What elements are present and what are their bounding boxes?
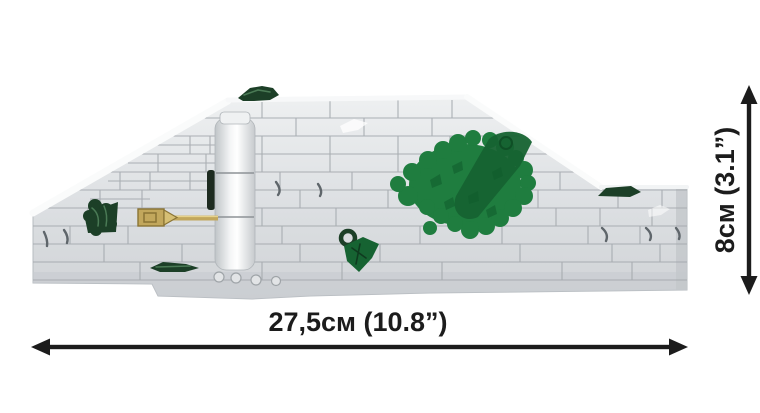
height-dimension: 8см (3.1”)	[710, 85, 758, 295]
brick-wall	[30, 97, 690, 302]
width-dimension: 27,5см (10.8”)	[31, 307, 688, 356]
product-dimension-figure: 27,5см (10.8”) 8см (3.1”)	[0, 0, 760, 413]
left-ivy-foliage	[83, 199, 118, 236]
width-label: 27,5см (10.8”)	[268, 307, 447, 337]
height-arrow	[741, 85, 758, 295]
height-label: 8см (3.1”)	[710, 127, 740, 254]
column-slot	[207, 170, 215, 210]
width-arrow	[31, 339, 688, 356]
product-image: 27,5см (10.8”) 8см (3.1”)	[0, 0, 760, 413]
column-cap	[220, 112, 250, 124]
wall-base-shadow	[30, 272, 690, 302]
lever-handle	[138, 209, 164, 226]
